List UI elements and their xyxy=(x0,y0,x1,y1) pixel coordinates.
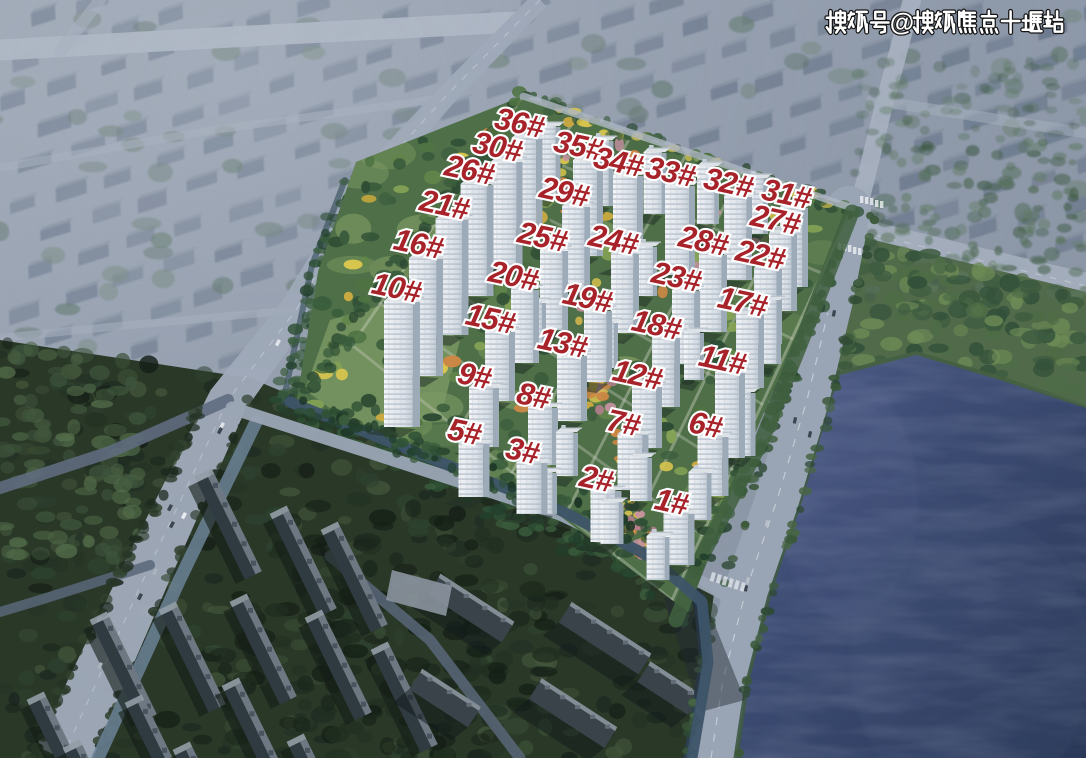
svg-text:@: @ xyxy=(890,9,914,37)
